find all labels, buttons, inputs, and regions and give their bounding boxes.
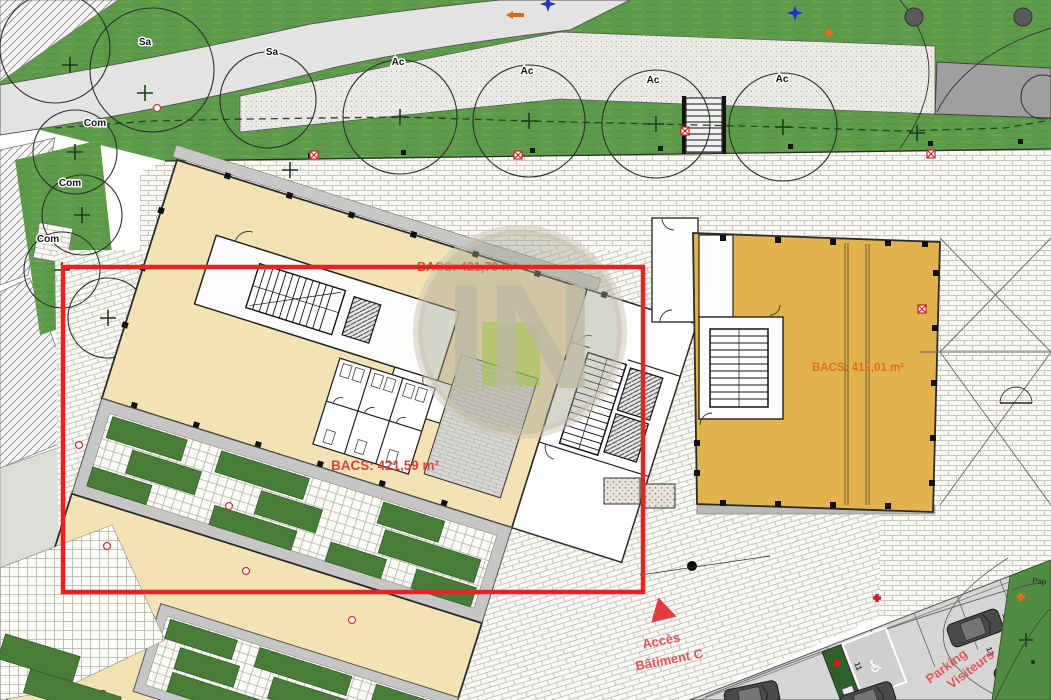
bollard-tree bbox=[1014, 8, 1032, 26]
tree-label-sa: Sa bbox=[266, 47, 279, 58]
tree-label-ac: Ac bbox=[392, 57, 405, 68]
roadway bbox=[935, 62, 1051, 118]
site-plan-drawing: Sa Sa Ac Ac Ac Ac Com Com Com bbox=[0, 0, 1051, 700]
corridor-notch bbox=[699, 235, 733, 317]
surface-label-left: BACS: 421,59 m² bbox=[331, 458, 440, 473]
tree-label-ac: Ac bbox=[647, 75, 660, 86]
right-core bbox=[699, 305, 783, 425]
gravel-panel bbox=[645, 484, 675, 508]
site-plan-canvas: Sa Sa Ac Ac Ac Ac Com Com Com bbox=[0, 0, 1051, 700]
tree-label-com: Com bbox=[59, 178, 81, 189]
tree-label-ac: Ac bbox=[521, 66, 534, 77]
pap-label: Pap bbox=[1032, 576, 1048, 586]
gravel-panel bbox=[604, 478, 640, 504]
tree-label-sa: Sa bbox=[139, 37, 152, 48]
tree-label-com: Com bbox=[37, 234, 59, 245]
watermark: IN bbox=[418, 230, 622, 434]
watermark-text: IN bbox=[445, 252, 595, 420]
shrub-dot bbox=[1031, 660, 1035, 664]
building-right-wing: BACS: 412,01 m² bbox=[693, 233, 940, 512]
surface-label-right: BACS: 412,01 m² bbox=[812, 362, 904, 374]
tree-label-ac: Ac bbox=[776, 74, 789, 85]
bollard-tree bbox=[905, 8, 923, 26]
survey-point bbox=[687, 561, 697, 571]
tree-label-com: Com bbox=[84, 118, 106, 129]
north-corridor bbox=[652, 218, 698, 322]
